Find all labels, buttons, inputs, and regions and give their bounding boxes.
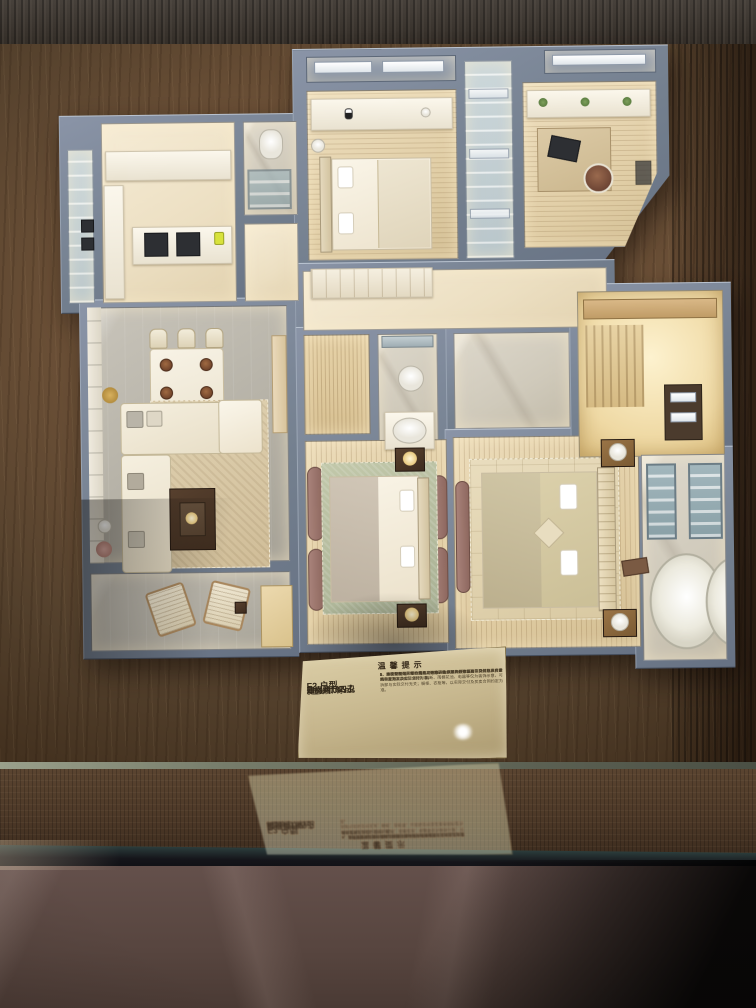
room-master-bath — [641, 454, 728, 661]
cabinet-display — [670, 392, 696, 402]
cushion — [128, 531, 145, 548]
glass-shelf — [469, 148, 509, 158]
place-setting — [200, 358, 213, 371]
plant — [539, 98, 548, 107]
cooktop — [144, 233, 168, 257]
reflected-title: 温馨提示 — [266, 836, 503, 853]
room-entry-hall — [244, 223, 299, 302]
duvet — [482, 473, 542, 608]
pillow — [338, 212, 354, 234]
reflected-specs: F2 户型 建面约187㎡ 四房两厅四卫 模型比例：约1:25 — [259, 756, 340, 838]
nightstand-lamp — [405, 608, 419, 622]
floor-highlight — [0, 840, 120, 870]
glass-cabinet — [688, 463, 723, 539]
duvet — [377, 159, 430, 248]
decor-bowl — [186, 512, 198, 524]
place-setting — [160, 359, 173, 372]
dining-chair — [177, 328, 195, 348]
pillow — [337, 166, 353, 188]
duvet — [330, 477, 380, 602]
room-inner-hall — [453, 332, 570, 429]
side-stool — [98, 519, 112, 533]
balcony-table — [235, 602, 247, 614]
toilet — [259, 129, 283, 159]
reflected-plaque: 温馨提示 F2 户型 建面约187㎡ 四房两厅四卫 模型比例：约1:25 1、本… — [247, 763, 513, 862]
reflected-inner: 温馨提示 F2 户型 建面约187㎡ 四房两厅四卫 模型比例：约1:25 1、本… — [259, 768, 504, 853]
cushion — [127, 473, 144, 490]
side-stool — [96, 541, 112, 557]
hanging-clothes — [585, 325, 644, 408]
kitchen-counter — [104, 185, 125, 299]
bath2-mirror — [381, 335, 433, 348]
nightstand-lamp — [403, 452, 417, 466]
vase — [421, 107, 431, 117]
bedroom2-shelf — [310, 97, 452, 131]
cabinet-display — [670, 412, 696, 422]
toilet — [398, 365, 424, 391]
cushion — [146, 411, 162, 427]
panda-figurine — [345, 108, 353, 119]
bed-headboard — [417, 477, 430, 599]
place-setting — [160, 387, 173, 400]
ball-lamp — [609, 443, 627, 461]
pillow — [400, 546, 415, 568]
room-bedroom4-closet — [303, 334, 370, 435]
glass-shelf — [470, 208, 510, 218]
table-lamp — [311, 139, 325, 153]
cooktop — [176, 232, 200, 256]
reflected-scale: 模型比例：约1:25 — [266, 818, 315, 828]
pillow — [559, 484, 577, 510]
appliance — [81, 237, 94, 250]
plant — [581, 97, 590, 106]
sofa-corner — [218, 399, 263, 454]
dining-chair — [149, 329, 167, 349]
plant — [622, 97, 631, 106]
cloakroom-shelf — [583, 298, 717, 320]
kitchen-cabinets — [105, 150, 231, 182]
scale-label: 模型比例：约1:25 — [307, 685, 355, 696]
glass-shelf — [468, 88, 508, 98]
glass-cabinet — [646, 463, 677, 539]
info-plaque: 温馨提示 F2 户型 建面约187㎡ 四房两厅四卫 模型比例：约1:25 1、本… — [294, 646, 510, 765]
tv-wall-panel — [271, 335, 287, 433]
window-slot — [314, 61, 372, 74]
floor-shadow — [380, 860, 756, 1008]
office-chair — [583, 163, 613, 193]
window-slot — [552, 54, 646, 66]
window-slot — [382, 60, 444, 73]
side-chair — [635, 161, 651, 185]
corridor-wardrobe — [311, 267, 433, 298]
cushion — [126, 411, 143, 428]
ball-lamp — [611, 613, 629, 631]
gold-plant-pot — [102, 387, 118, 403]
plaque-reflection: 温馨提示 F2 户型 建面约187㎡ 四房两厅四卫 模型比例：约1:25 1、本… — [247, 763, 513, 862]
appliance — [81, 219, 94, 232]
kitchen-accessory — [214, 232, 224, 245]
plaque-inner: 温馨提示 F2 户型 建面约187㎡ 四房两厅四卫 模型比例：约1:25 1、本… — [304, 655, 503, 759]
light-glare — [452, 723, 475, 740]
curtain — [455, 481, 470, 593]
pillow — [560, 550, 578, 576]
plaque-specs: F2 户型 建面约187㎡ 四房两厅四卫 模型比例：约1:25 — [306, 675, 381, 757]
shower-glass — [247, 169, 291, 210]
place-setting — [200, 386, 213, 399]
balcony-step — [260, 585, 293, 647]
pillow — [399, 490, 414, 512]
scene-photo-apartment-model: 温馨提示 F2 户型 建面约187㎡ 四房两厅四卫 模型比例：约1:25 1、本… — [0, 0, 756, 1008]
dining-chair — [205, 328, 223, 348]
bed-headboard-ornate — [597, 467, 617, 611]
